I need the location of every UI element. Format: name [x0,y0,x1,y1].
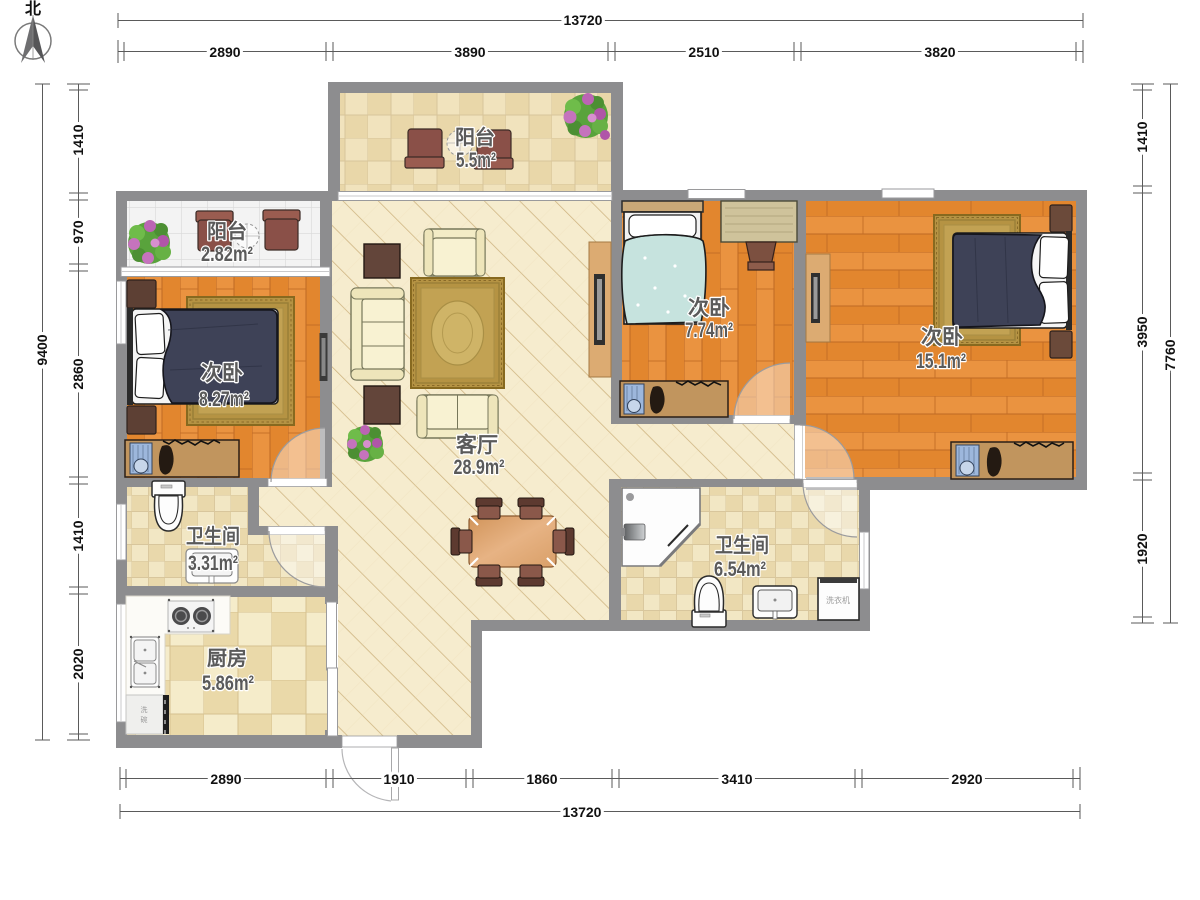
svg-text:阳台: 阳台 [207,219,247,243]
svg-text:3890: 3890 [454,44,485,60]
svg-text:厨房: 厨房 [207,646,247,670]
svg-text:2020: 2020 [70,648,86,679]
svg-text:碗: 碗 [141,715,148,724]
svg-text:6.54m²: 6.54m² [714,558,766,581]
svg-text:1410: 1410 [1134,121,1150,152]
svg-text:阳台: 阳台 [455,125,495,149]
svg-text:卫生间: 卫生间 [186,525,240,548]
svg-text:970: 970 [70,220,86,244]
svg-text:3410: 3410 [721,771,752,787]
svg-text:7.74m²: 7.74m² [685,319,733,342]
svg-text:13720: 13720 [564,12,603,28]
svg-text:北: 北 [25,0,41,18]
svg-text:1910: 1910 [383,771,414,787]
svg-text:2510: 2510 [688,44,719,60]
svg-text:客厅: 客厅 [456,433,498,457]
svg-text:9400: 9400 [34,334,50,365]
svg-text:次卧: 次卧 [921,325,963,349]
svg-text:7760: 7760 [1162,339,1178,370]
svg-text:2.82m²: 2.82m² [201,243,253,266]
svg-text:卫生间: 卫生间 [715,534,769,557]
svg-text:洗衣机: 洗衣机 [826,595,850,605]
svg-text:1860: 1860 [526,771,557,787]
svg-text:28.9m²: 28.9m² [454,456,505,479]
svg-text:3950: 3950 [1134,316,1150,347]
svg-text:2920: 2920 [951,771,982,787]
svg-text:3820: 3820 [924,44,955,60]
svg-text:5.86m²: 5.86m² [202,672,254,695]
svg-text:1920: 1920 [1134,533,1150,564]
svg-text:次卧: 次卧 [201,361,243,385]
svg-text:1410: 1410 [70,124,86,155]
svg-text:2860: 2860 [70,358,86,389]
svg-text:3.31m²: 3.31m² [188,552,238,575]
svg-text:1410: 1410 [70,520,86,551]
svg-text:次卧: 次卧 [688,296,730,320]
svg-text:8.27m²: 8.27m² [199,388,249,411]
svg-text:13720: 13720 [563,804,602,820]
svg-text:洗: 洗 [141,705,148,714]
svg-text:5.5m²: 5.5m² [456,149,496,172]
svg-text:2890: 2890 [209,44,240,60]
svg-text:2890: 2890 [210,771,241,787]
svg-text:15.1m²: 15.1m² [916,350,966,373]
